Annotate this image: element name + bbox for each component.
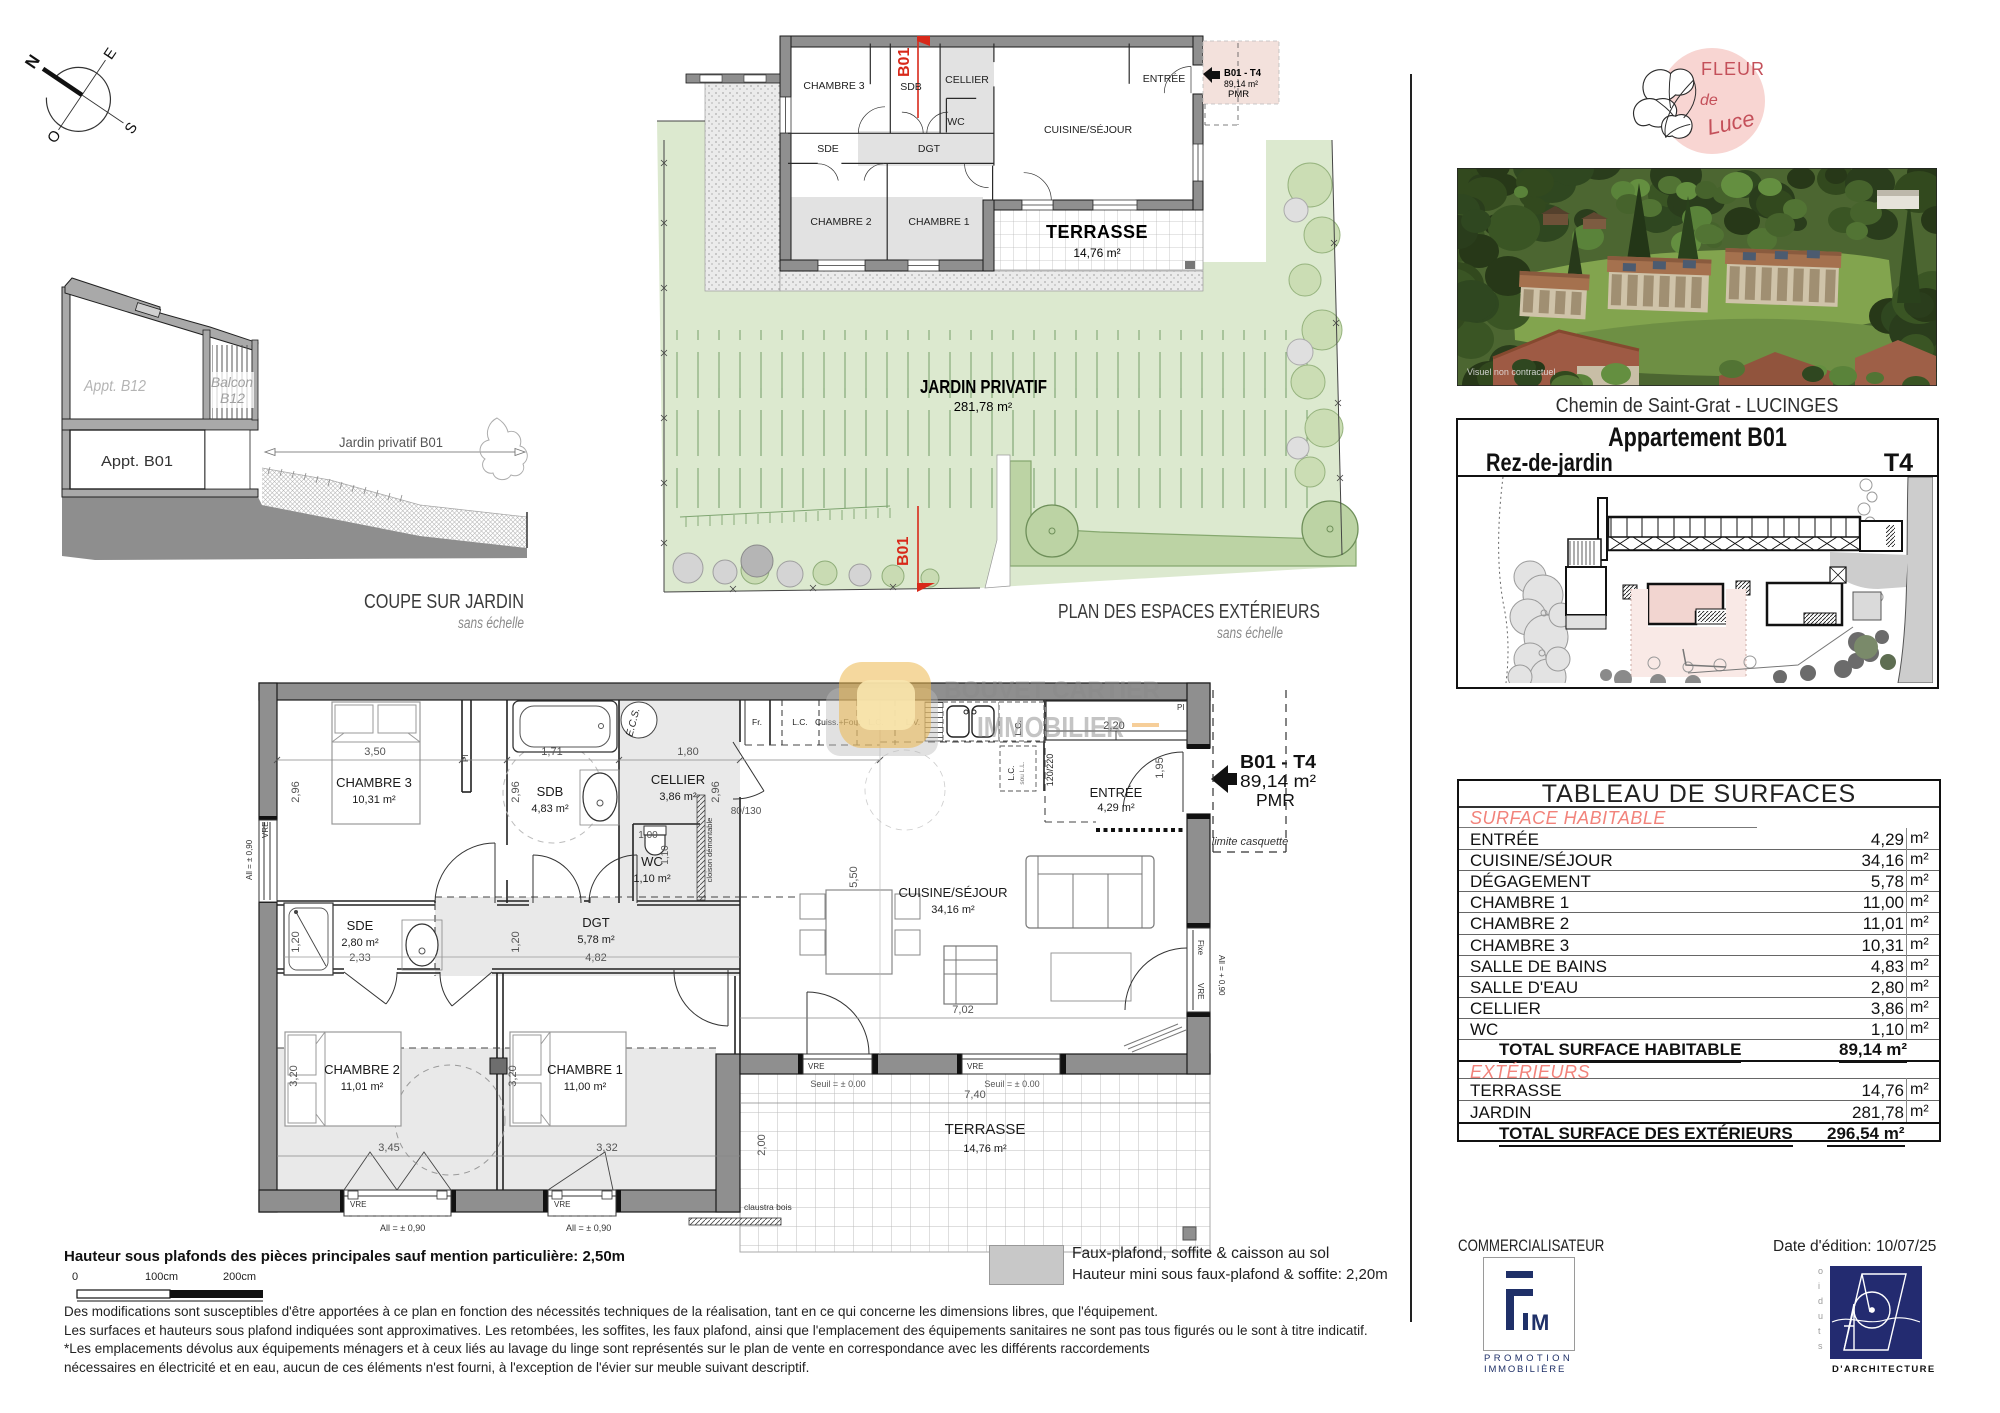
svg-text:3,20: 3,20 [507,1065,519,1086]
svg-text:CHAMBRE 2: CHAMBRE 2 [324,1062,400,1077]
svg-text:VRE: VRE [967,1062,983,1071]
svg-text:TERRASSE: TERRASSE [945,1121,1026,1138]
svg-text:PMR: PMR [1228,89,1249,100]
svg-text:1,20: 1,20 [510,931,522,952]
svg-text:2,80 m²: 2,80 m² [341,937,379,949]
svg-text:100cm: 100cm [145,1271,178,1283]
svg-text:80/130: 80/130 [731,806,762,817]
svg-text:TERRASSE: TERRASSE [1046,222,1148,242]
svg-text:sou L.L.: sou L.L. [1019,761,1026,784]
svg-text:Appt. B12: Appt. B12 [83,378,146,395]
svg-text:u: u [1818,1311,1823,1321]
svg-text:1,71: 1,71 [541,746,562,758]
svg-text:sans échelle: sans échelle [1217,625,1283,642]
svg-text:PMR: PMR [1256,790,1295,810]
svg-text:VRE: VRE [350,1200,366,1209]
svg-text:B12: B12 [220,390,245,406]
svg-text:7,40: 7,40 [964,1089,985,1101]
svg-text:1,00: 1,00 [638,830,658,841]
svg-text:de: de [1700,92,1718,109]
svg-text:1,10 m²: 1,10 m² [633,873,671,885]
svg-text:2,96: 2,96 [710,781,722,802]
svg-text:limite casquette: limite casquette [1212,836,1288,848]
svg-text:Fixe: Fixe [1196,940,1205,956]
svg-text:ENTRÉE: ENTRÉE [1090,785,1143,800]
svg-text:L.C.: L.C. [792,717,808,727]
svg-text:B01: B01 [896,48,913,77]
svg-text:s: s [1818,1341,1823,1351]
svg-text:3,32: 3,32 [596,1142,617,1154]
svg-text:CHAMBRE 3: CHAMBRE 3 [803,80,864,92]
svg-text:4,82: 4,82 [585,952,606,964]
svg-text:14,76 m²: 14,76 m² [1073,246,1120,260]
svg-text:sans échelle: sans échelle [458,615,524,632]
svg-text:11,01 m²: 11,01 m² [341,1081,384,1093]
svg-text:Fr.: Fr. [752,717,762,727]
svg-text:5,78 m²: 5,78 m² [577,934,615,946]
svg-text:All = + 0,90: All = + 0,90 [1217,955,1226,996]
svg-text:B01: B01 [895,537,912,566]
svg-text:1,80: 1,80 [677,746,698,758]
svg-text:SDE: SDE [347,918,374,933]
svg-text:cloison démontable: cloison démontable [705,818,714,883]
svg-text:d: d [1818,1296,1823,1306]
svg-text:SDB: SDB [900,81,922,93]
svg-text:14,76 m²: 14,76 m² [963,1143,1007,1155]
svg-text:SDE: SDE [817,143,839,155]
svg-text:2,33: 2,33 [349,952,370,964]
svg-text:2,96: 2,96 [290,781,302,802]
svg-text:CELLIER: CELLIER [651,772,705,787]
svg-text:CUISINE/SÉJOUR: CUISINE/SÉJOUR [1044,123,1133,136]
svg-text:Visuel non contractuel: Visuel non contractuel [1467,367,1555,377]
svg-text:5,50: 5,50 [848,866,860,887]
svg-text:11,00 m²: 11,00 m² [564,1081,607,1093]
svg-text:VRE: VRE [554,1200,570,1209]
svg-text:4,29 m²: 4,29 m² [1097,802,1135,814]
svg-text:PI: PI [1177,703,1185,712]
svg-text:2,00: 2,00 [756,1134,768,1155]
svg-text:Jardin privatif B01: Jardin privatif B01 [339,434,443,450]
svg-text:120/220: 120/220 [1045,754,1055,787]
svg-text:281,78 m²: 281,78 m² [954,399,1013,414]
svg-text:200cm: 200cm [223,1271,256,1283]
svg-text:DGT: DGT [582,915,610,930]
svg-text:VRE: VRE [1196,983,1205,999]
svg-text:COUPE SUR JARDIN: COUPE SUR JARDIN [364,591,524,613]
svg-text:D'ARCHITECTURE: D'ARCHITECTURE [1832,1364,1935,1375]
svg-text:ENTRÉE: ENTRÉE [1143,72,1186,85]
svg-text:i: i [1818,1281,1820,1291]
svg-text:B01 - T4: B01 - T4 [1240,752,1316,772]
svg-text:3,20: 3,20 [288,1065,300,1086]
svg-text:S: S [121,119,141,137]
svg-text:E: E [101,45,121,63]
svg-text:4,83 m²: 4,83 m² [531,803,569,815]
svg-text:CHAMBRE 1: CHAMBRE 1 [908,216,969,228]
svg-text:L.C.: L.C. [1007,766,1016,781]
svg-text:7,02: 7,02 [952,1004,973,1016]
svg-text:M: M [1531,1310,1549,1335]
svg-text:PLAN DES ESPACES EXTÉRIEURS: PLAN DES ESPACES EXTÉRIEURS [1058,600,1320,623]
svg-text:Seuil = ± 0.00: Seuil = ± 0.00 [984,1079,1039,1089]
svg-text:0: 0 [72,1271,78,1283]
svg-text:Balcon: Balcon [211,374,253,390]
svg-text:JARDIN PRIVATIF: JARDIN PRIVATIF [920,377,1047,397]
svg-text:All = ± 0,90: All = ± 0,90 [566,1223,611,1233]
svg-text:Appt. B01: Appt. B01 [101,453,173,470]
svg-text:10,31 m²: 10,31 m² [352,794,396,806]
svg-text:CHAMBRE 3: CHAMBRE 3 [336,775,412,790]
svg-text:Seuil = ± 0.00: Seuil = ± 0.00 [810,1079,865,1089]
svg-text:CUISINE/SÉJOUR: CUISINE/SÉJOUR [898,885,1007,900]
svg-text:CHAMBRE 1: CHAMBRE 1 [547,1062,623,1077]
svg-text:B01 - T4: B01 - T4 [1224,68,1261,79]
svg-text:VRE: VRE [261,822,270,838]
svg-text:VRE: VRE [808,1062,824,1071]
svg-text:SDB: SDB [537,784,564,799]
svg-text:t: t [1818,1326,1821,1336]
svg-text:PI: PI [461,754,470,762]
svg-text:FLEUR: FLEUR [1701,59,1765,79]
svg-text:3,50: 3,50 [364,746,385,758]
svg-text:CELLIER: CELLIER [945,74,989,86]
svg-text:WC: WC [641,854,663,869]
svg-text:claustra bois: claustra bois [744,1202,792,1212]
svg-text:O: O [44,127,65,146]
svg-text:PROMOTION: PROMOTION [1484,1353,1573,1364]
svg-text:DGT: DGT [918,143,941,155]
svg-text:2,96: 2,96 [510,781,522,802]
svg-text:All = ± 0,90: All = ± 0,90 [245,839,254,880]
svg-text:1,20: 1,20 [290,931,302,952]
svg-text:3,86 m²: 3,86 m² [659,791,697,803]
svg-text:All = ± 0,90: All = ± 0,90 [380,1223,425,1233]
svg-text:N: N [21,51,44,72]
svg-text:IMMOBILIÈRE: IMMOBILIÈRE [1484,1364,1566,1375]
svg-text:o: o [1818,1266,1823,1276]
svg-text:89,14 m²: 89,14 m² [1240,771,1316,791]
svg-text:3,45: 3,45 [378,1142,399,1154]
svg-text:CHAMBRE 2: CHAMBRE 2 [810,216,871,228]
svg-text:34,16 m²: 34,16 m² [931,904,975,916]
svg-text:WC: WC [947,116,965,128]
svg-text:1,95: 1,95 [1154,757,1166,778]
svg-text:IMMOBILIER: IMMOBILIER [977,712,1124,744]
svg-text:BOUVET CARTIER: BOUVET CARTIER [944,677,1160,704]
